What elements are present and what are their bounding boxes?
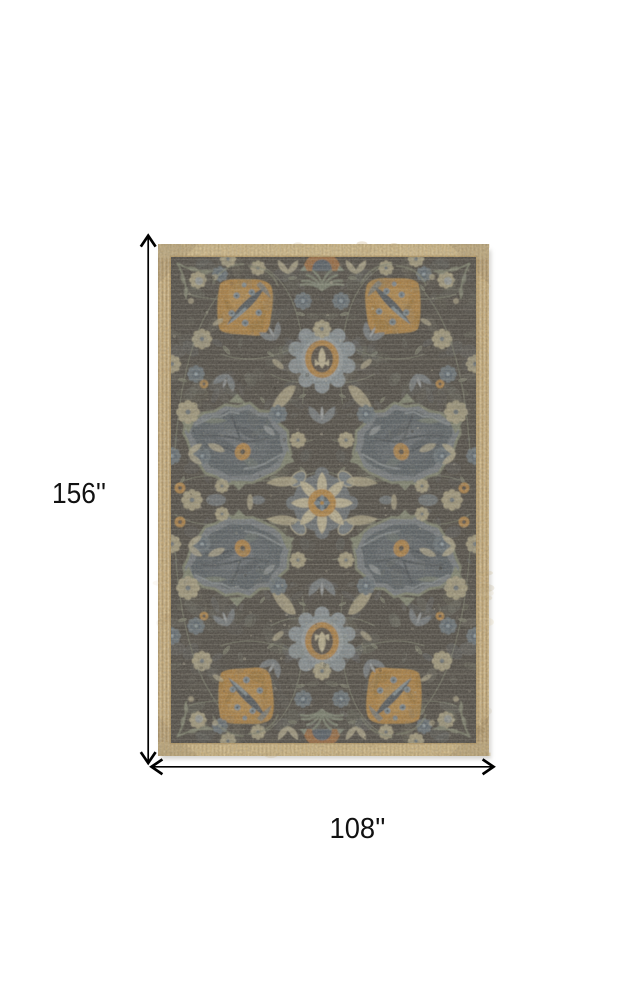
svg-text:108'': 108'' — [330, 813, 386, 845]
svg-text:156'': 156'' — [52, 478, 106, 510]
